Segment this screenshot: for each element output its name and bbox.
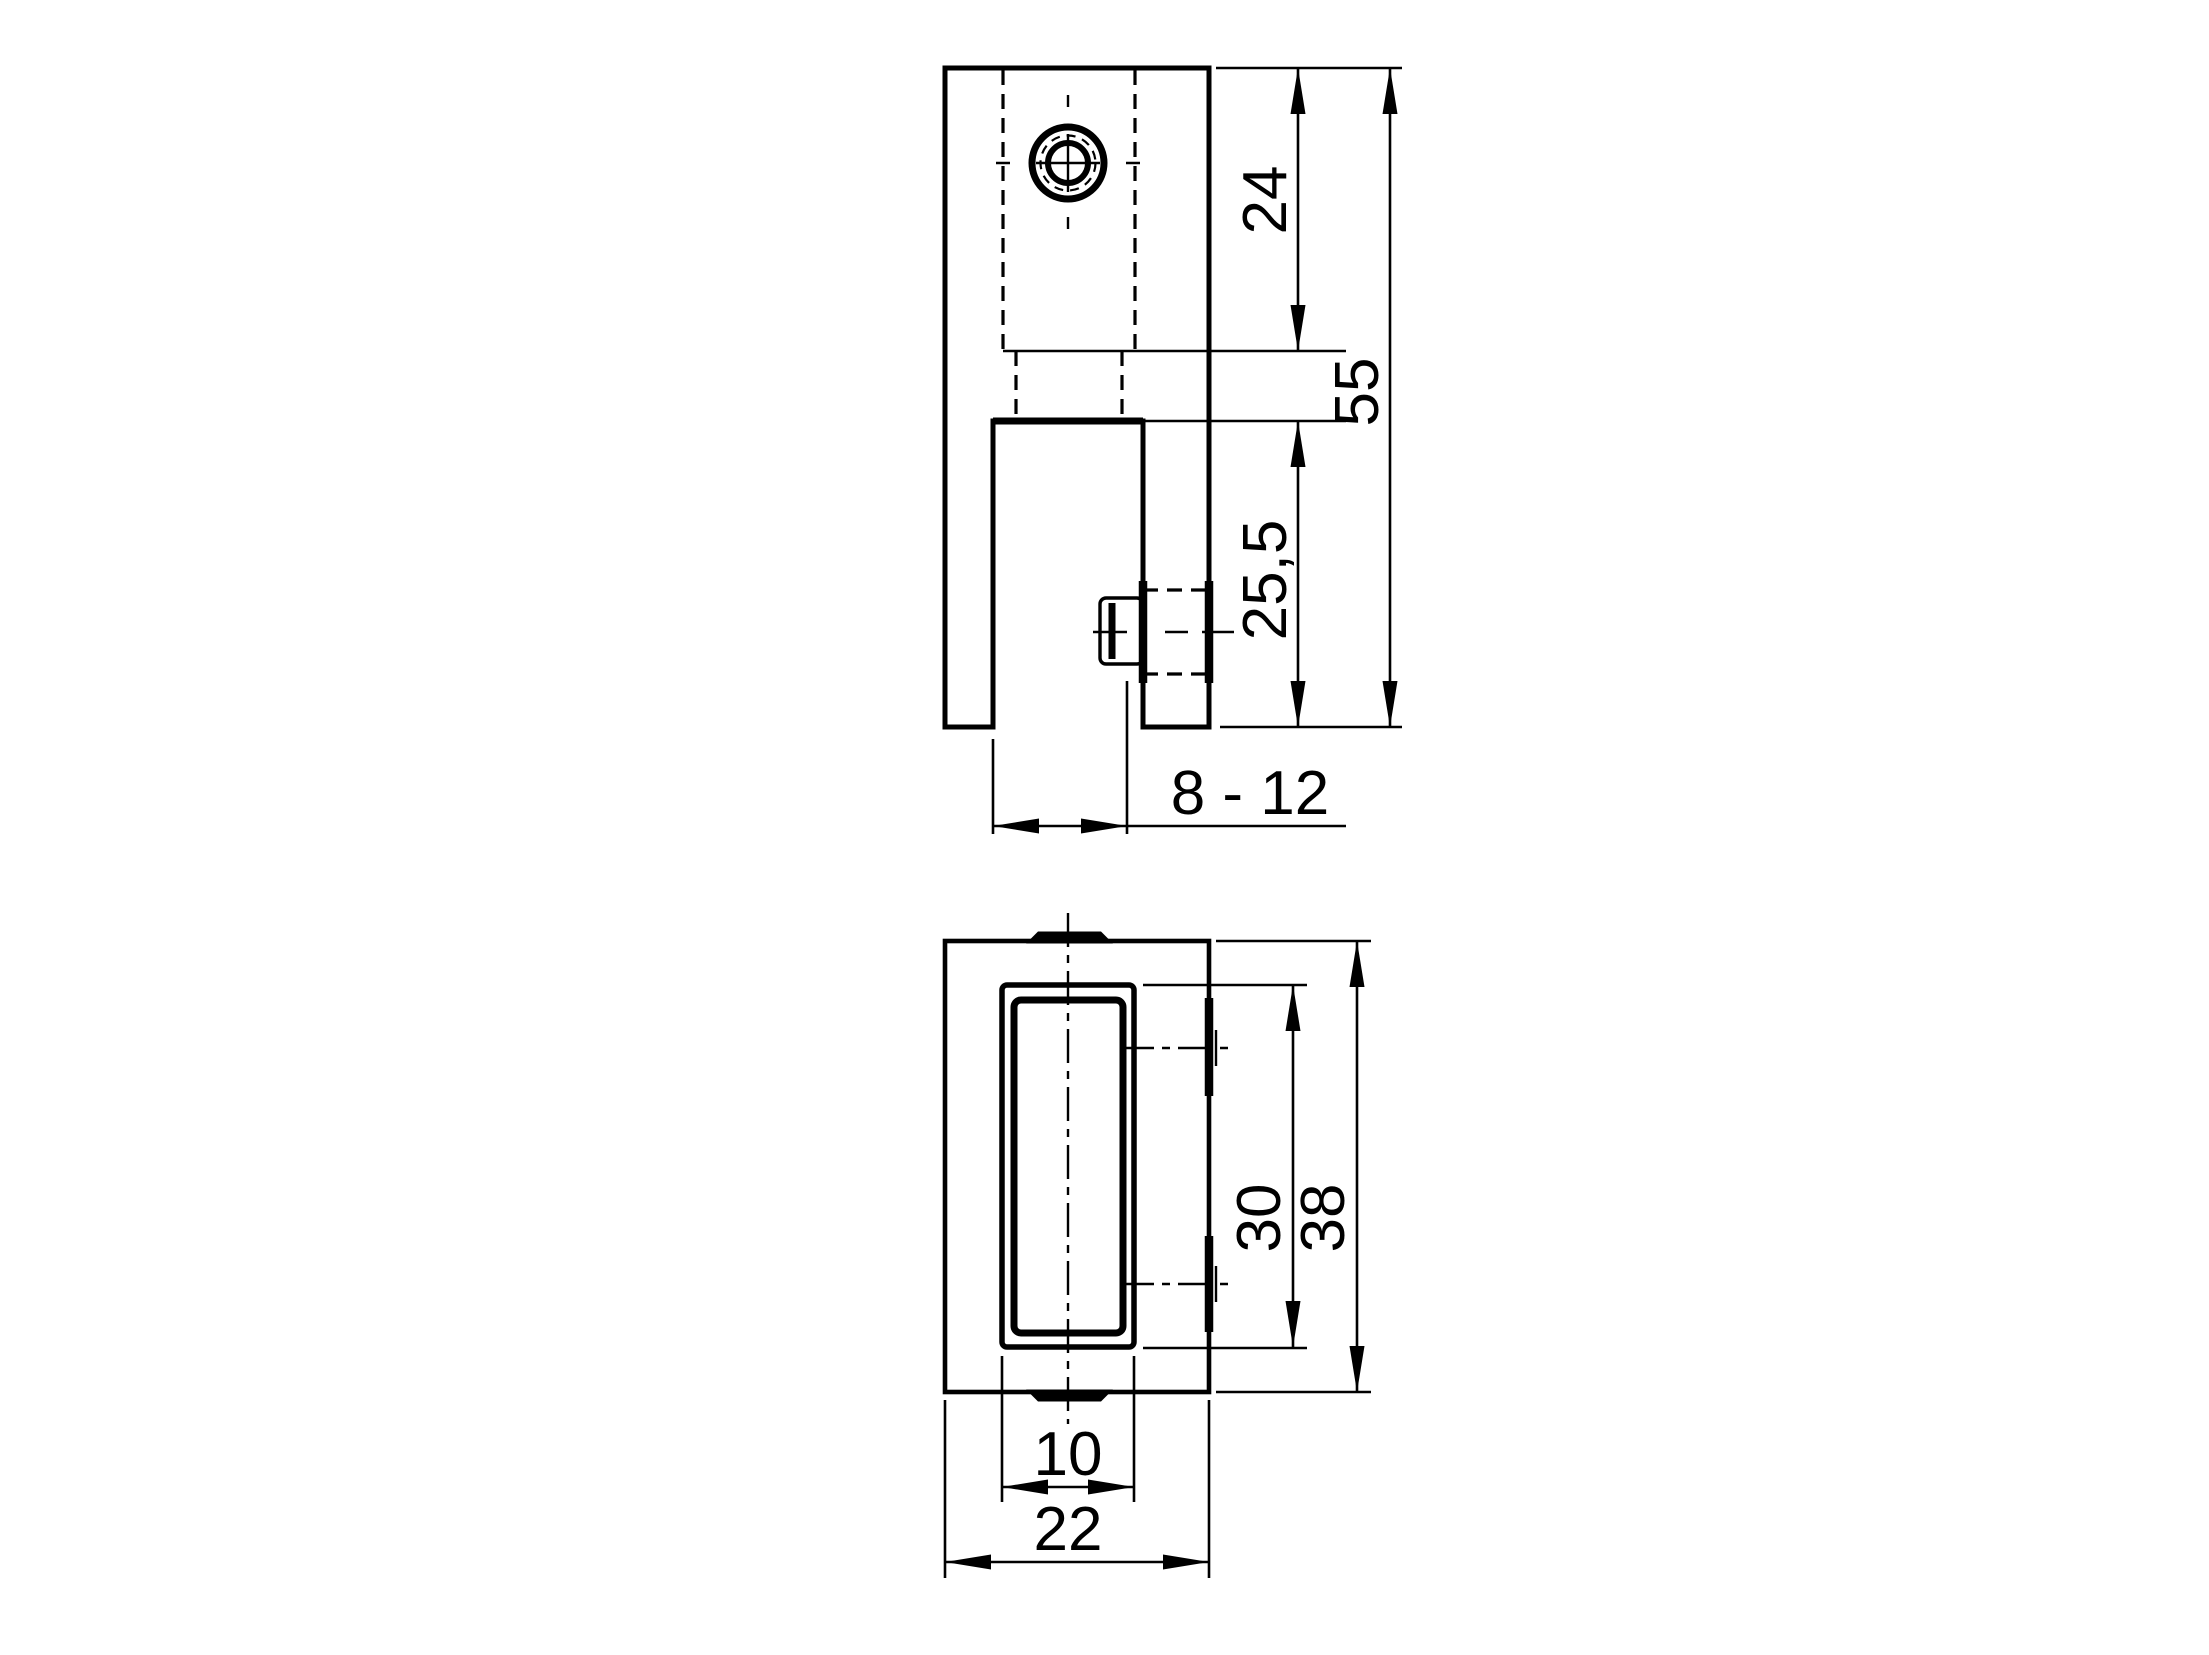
top-chamfer-tab — [1026, 932, 1113, 944]
dim-label-25-5: 25,5 — [1231, 520, 1300, 641]
side-view: 24 55 25,5 — [945, 68, 1402, 834]
arrowhead-55-bottom — [1383, 681, 1398, 727]
clamp-body-outline — [945, 68, 1209, 727]
arrowhead-38-top — [1350, 941, 1365, 987]
arrowhead-25-5-bottom — [1291, 681, 1306, 727]
arrowhead-24-top — [1291, 68, 1306, 114]
dimension-8-12: 8 - 12 — [993, 681, 1346, 834]
arrowhead-38-bottom — [1350, 1346, 1365, 1392]
mounting-hole — [996, 95, 1140, 229]
bottom-chamfer-tab — [1026, 1390, 1113, 1402]
arrowhead-22-right — [1163, 1555, 1209, 1570]
arrowhead-8-12-right — [1081, 819, 1127, 834]
engineering-drawing-svg: 24 55 25,5 — [0, 0, 2209, 1655]
dim-label-30: 30 — [1225, 1184, 1294, 1253]
dim-label-8-12: 8 - 12 — [1171, 759, 1330, 828]
dimension-25-5: 25,5 — [1231, 421, 1306, 727]
dimension-24: 24 — [1231, 68, 1306, 351]
dim-label-22: 22 — [1034, 1495, 1103, 1564]
arrowhead-30-bottom — [1286, 1301, 1301, 1347]
bottom-view: 30 38 10 — [945, 913, 1371, 1578]
arrowhead-22-left — [945, 1555, 991, 1570]
dim-label-38: 38 — [1289, 1184, 1358, 1253]
dim-label-10: 10 — [1034, 1420, 1103, 1489]
body-outline-rect — [945, 941, 1209, 1392]
dim-label-24: 24 — [1231, 166, 1300, 235]
dim-label-55: 55 — [1323, 358, 1392, 427]
arrowhead-8-12-left — [993, 819, 1039, 834]
dimension-55: 55 — [1323, 68, 1398, 727]
arrowhead-24-bottom — [1291, 305, 1306, 351]
arrowhead-25-5-top — [1291, 421, 1306, 467]
technical-drawing-page: 24 55 25,5 — [0, 0, 2209, 1655]
dimension-30: 30 — [1143, 985, 1307, 1348]
arrowhead-55-top — [1383, 68, 1398, 114]
arrowhead-30-top — [1286, 985, 1301, 1031]
set-screw — [1093, 581, 1234, 683]
